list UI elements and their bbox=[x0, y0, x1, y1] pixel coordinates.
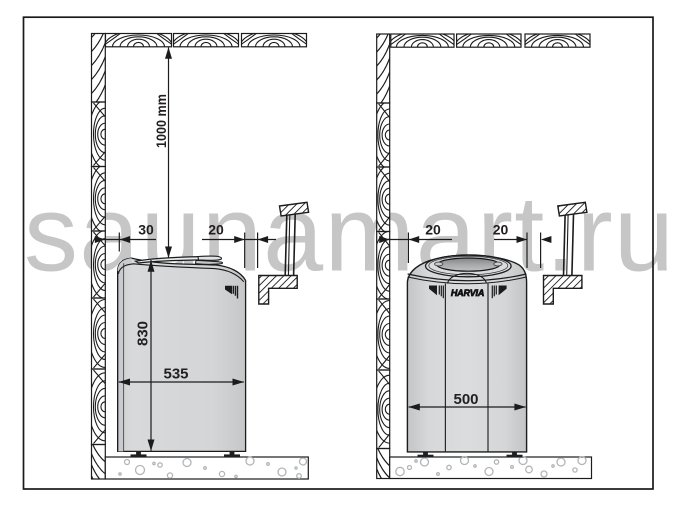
svg-text:20: 20 bbox=[493, 222, 509, 238]
svg-text:500: 500 bbox=[453, 391, 478, 408]
svg-text:20: 20 bbox=[208, 222, 224, 238]
svg-text:HARVIA: HARVIA bbox=[451, 288, 484, 298]
svg-text:30: 30 bbox=[138, 222, 154, 238]
svg-text:535: 535 bbox=[163, 366, 188, 383]
svg-text:20: 20 bbox=[425, 222, 441, 238]
svg-text:1000 mm: 1000 mm bbox=[153, 94, 169, 148]
svg-text:830: 830 bbox=[135, 321, 152, 346]
